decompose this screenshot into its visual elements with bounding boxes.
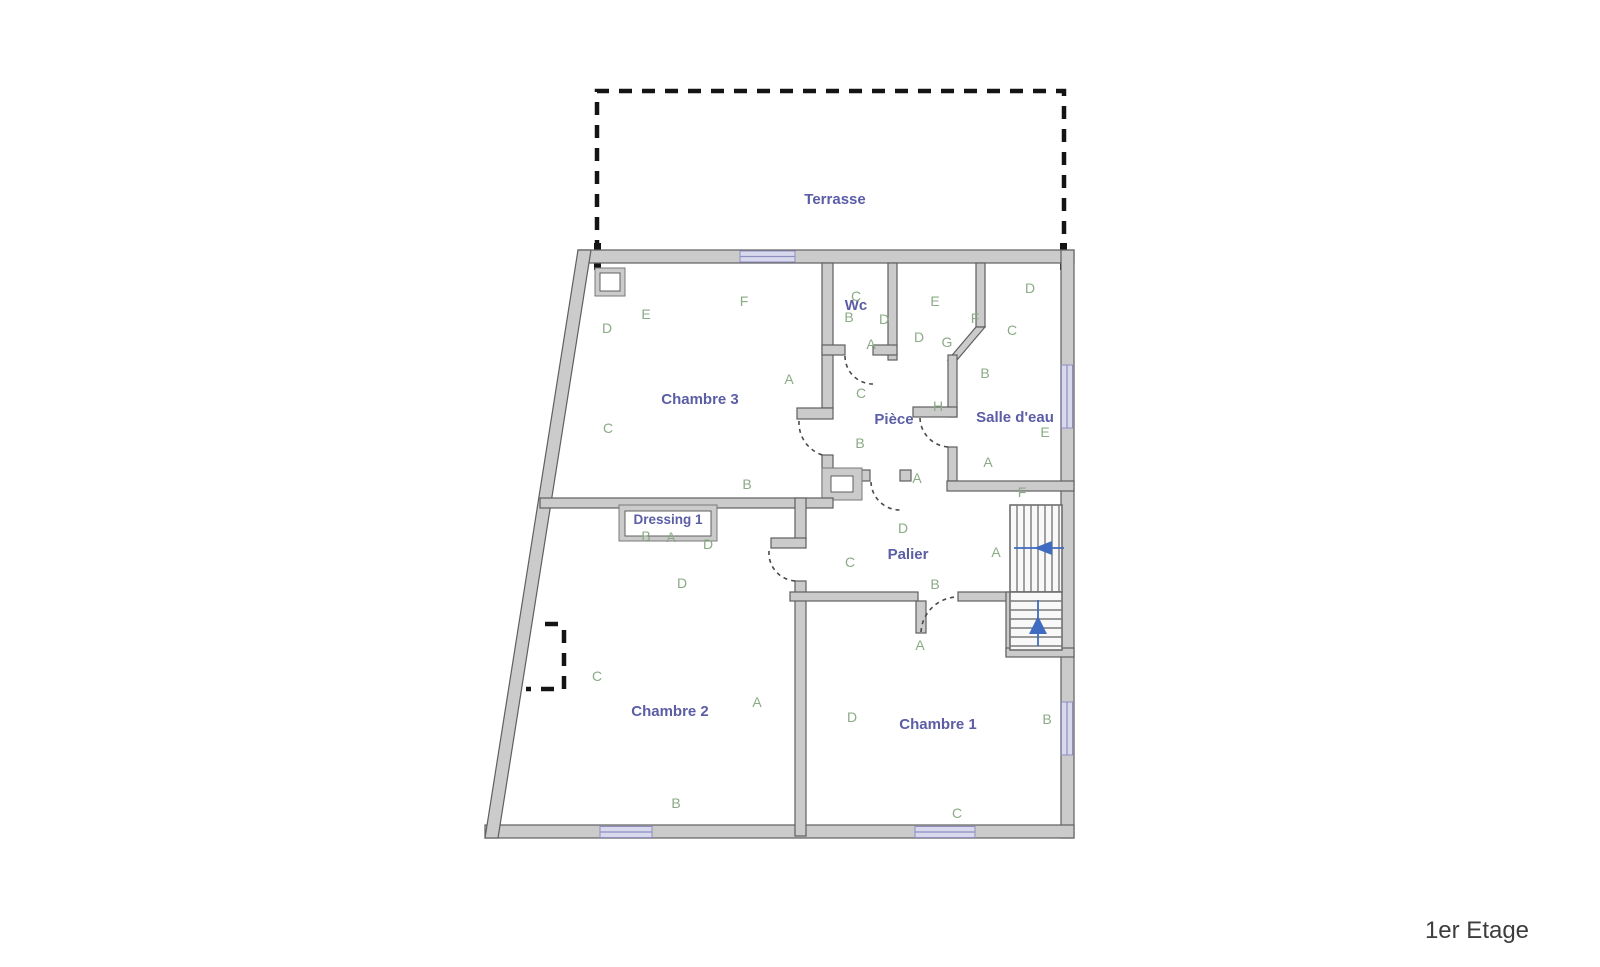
marker-chambre-2-a: A	[752, 694, 762, 710]
room-label-dressing-1: Dressing 1	[633, 512, 703, 527]
marker-wc-a: A	[866, 336, 876, 352]
marker-palier-a: A	[991, 544, 1001, 560]
marker-salle-deau-b: B	[980, 365, 989, 381]
door-arc-chambre2	[769, 551, 797, 581]
marker-piece-e: E	[930, 293, 939, 309]
marker-chambre-1-c: C	[952, 805, 962, 821]
floor-title: 1er Etage	[1425, 917, 1529, 944]
staircase	[1010, 505, 1064, 650]
marker-chambre-2-b: B	[671, 795, 680, 811]
marker-chambre-2-d: D	[677, 575, 687, 591]
marker-palier-d: D	[898, 520, 908, 536]
marker-chambre-3-d: D	[602, 320, 612, 336]
marker-piece-d: D	[914, 329, 924, 345]
marker-chambre-2-c: C	[592, 668, 602, 684]
marker-salle-deau-e: E	[1040, 424, 1049, 440]
room-label-chambre-3: Chambre 3	[661, 391, 739, 408]
room-label-terrasse: Terrasse	[804, 191, 865, 208]
marker-piece-g: G	[942, 334, 953, 350]
marker-dressing-1-b: B	[641, 528, 650, 544]
marker-piece-a: A	[912, 470, 922, 486]
marker-chambre-3-b: B	[742, 476, 751, 492]
door-arc-salle-deau	[920, 418, 950, 447]
marker-piece-b: B	[855, 435, 864, 451]
marker-piece-f: F	[971, 310, 980, 326]
room-label-palier: Palier	[888, 546, 929, 563]
floor-plan-canvas: TerrasseChambre 3WcPièceSalle d'eauDress…	[0, 0, 1600, 967]
marker-palier-b: B	[930, 576, 939, 592]
marker-salle-deau-a: A	[983, 454, 993, 470]
marker-chambre-3-c: C	[603, 420, 613, 436]
door-arc-palier	[871, 482, 900, 510]
chambre2-dashed-line	[526, 624, 564, 689]
marker-palier-c: C	[845, 554, 855, 570]
marker-salle-deau-d: D	[1025, 280, 1035, 296]
marker-dressing-1-d: D	[703, 536, 713, 552]
terrasse-dashed-outline	[594, 91, 1067, 270]
marker-salle-deau-c: C	[1007, 322, 1017, 338]
wall-bottom	[485, 825, 1074, 838]
room-label-piece: Pièce	[874, 411, 913, 428]
wall-top	[578, 250, 1074, 263]
marker-wc-b: B	[844, 309, 853, 325]
room-label-chambre-2: Chambre 2	[631, 703, 709, 720]
marker-chambre-1-d: D	[847, 709, 857, 725]
marker-palier-a: A	[915, 637, 925, 653]
marker-chambre-3-f: F	[740, 293, 749, 309]
marker-salle-deau-f: F	[1018, 484, 1027, 500]
marker-chambre-1-b: B	[1042, 711, 1051, 727]
marker-chambre-3-e: E	[641, 306, 650, 322]
marker-wc-c: C	[851, 288, 861, 304]
floor-plan-page: TerrasseChambre 3WcPièceSalle d'eauDress…	[0, 0, 1600, 967]
marker-chambre-3-a: A	[784, 371, 794, 387]
door-arc-chambre3	[799, 421, 826, 456]
marker-piece-h: H	[933, 398, 943, 414]
room-label-chambre-1: Chambre 1	[899, 716, 977, 733]
door-arc-wc	[845, 356, 873, 384]
marker-wc-d: D	[879, 311, 889, 327]
marker-dressing-1-a: A	[666, 529, 676, 545]
wall-left-slanted	[485, 250, 591, 838]
marker-wc-c: C	[856, 385, 866, 401]
